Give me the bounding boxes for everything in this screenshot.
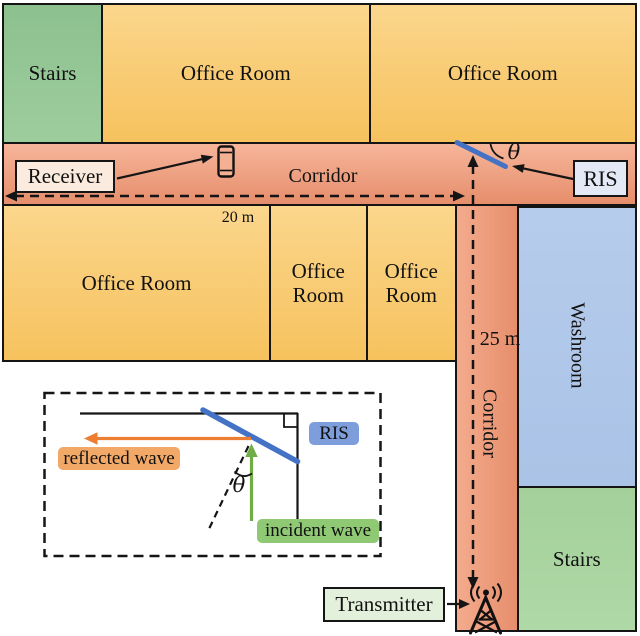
room-label: Office Room (82, 271, 192, 295)
room-stairs-top: Stairs (2, 3, 103, 144)
incident-wave-arrowhead (245, 444, 257, 458)
washroom-label: Washroom (564, 276, 591, 416)
angle-theta-main: θ (502, 139, 526, 165)
reflected-wave-arrowhead (84, 432, 98, 444)
corridor-horizontal-label: Corridor (281, 165, 365, 188)
angle-theta-inset: θ (227, 472, 251, 498)
room-office-top-left: Office Room (101, 3, 372, 144)
ris-inset-tag: RIS (309, 422, 359, 445)
room-office-top-right: Office Room (369, 3, 638, 144)
room-office-mid-small-1: Office Room (269, 204, 369, 363)
room-label: Stairs (553, 547, 601, 571)
right-angle-marker (284, 414, 298, 428)
ris-callout: RIS (573, 160, 628, 197)
transmitter-callout: Transmitter (323, 587, 445, 622)
incident-wave-tag: incident wave (257, 519, 379, 543)
room-label: Stairs (29, 61, 77, 85)
distance-25m-label: 25 m (478, 328, 522, 350)
ris-surface-inset (203, 410, 298, 462)
corridor-vertical-label: Corridor (476, 364, 503, 484)
room-stairs-bottom: Stairs (517, 486, 638, 633)
room-label: Office Room (181, 61, 291, 85)
room-label: Office Room (378, 259, 446, 307)
receiver-callout: Receiver (15, 160, 115, 193)
floor-plan-figure: Stairs Office Room Office Room Office Ro… (0, 0, 640, 636)
room-label: Office Room (448, 61, 558, 85)
room-label: Office Room (285, 259, 353, 307)
room-office-mid-small-2: Office Room (366, 204, 458, 363)
reflected-wave-tag: reflected wave (58, 447, 180, 470)
distance-20m-label: 20 m (206, 206, 270, 230)
